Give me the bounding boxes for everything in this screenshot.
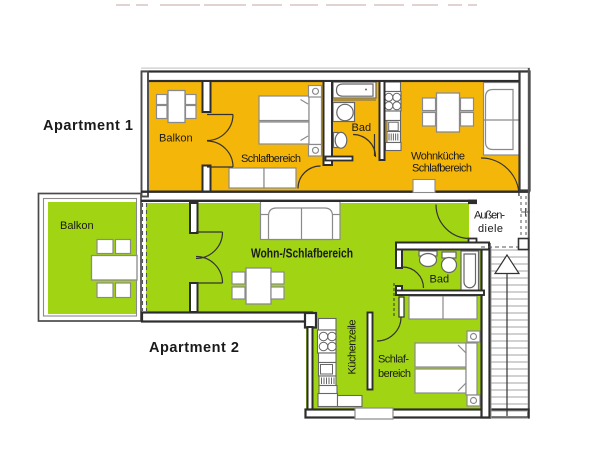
svg-text:Wohnküche: Wohnküche [411, 151, 465, 163]
svg-text:Bad: Bad [352, 122, 372, 134]
svg-text:Balkon: Balkon [159, 133, 193, 145]
svg-text:Wohn-/Schlafbereich: Wohn-/Schlafbereich [251, 246, 353, 261]
svg-text:Bad: Bad [430, 274, 450, 286]
svg-text:Balkon: Balkon [60, 220, 94, 232]
svg-text:Schlafbereich: Schlafbereich [241, 153, 301, 165]
svg-text:Schlaf-: Schlaf- [378, 354, 409, 366]
svg-text:Apartment 2: Apartment 2 [149, 340, 239, 356]
svg-text:Küchenzeile: Küchenzeile [347, 320, 359, 375]
svg-text:Schlafbereich: Schlafbereich [412, 163, 472, 175]
svg-text:bereich: bereich [378, 368, 411, 380]
svg-text:diele: diele [478, 223, 503, 235]
svg-text:Apartment 1: Apartment 1 [43, 118, 133, 134]
svg-text:Außen-: Außen- [474, 210, 505, 222]
